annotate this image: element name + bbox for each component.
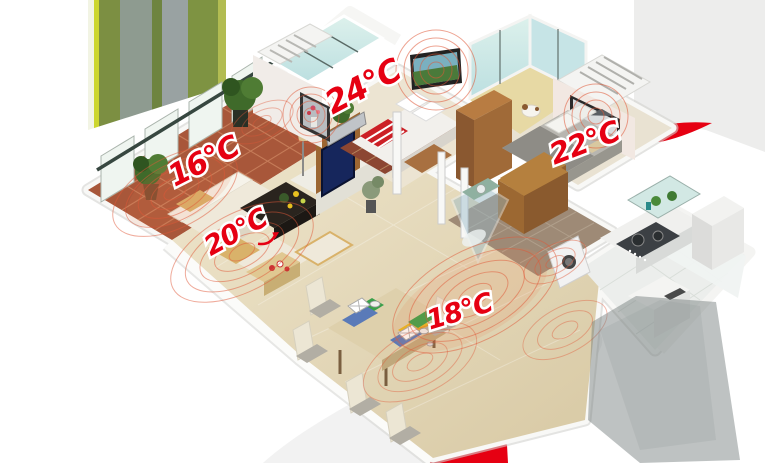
floor-plan-illustration: 16°C 20°C 24°C 22°C 18°C — [0, 0, 765, 463]
scene: 16°C 20°C 24°C 22°C 18°C — [0, 0, 765, 463]
